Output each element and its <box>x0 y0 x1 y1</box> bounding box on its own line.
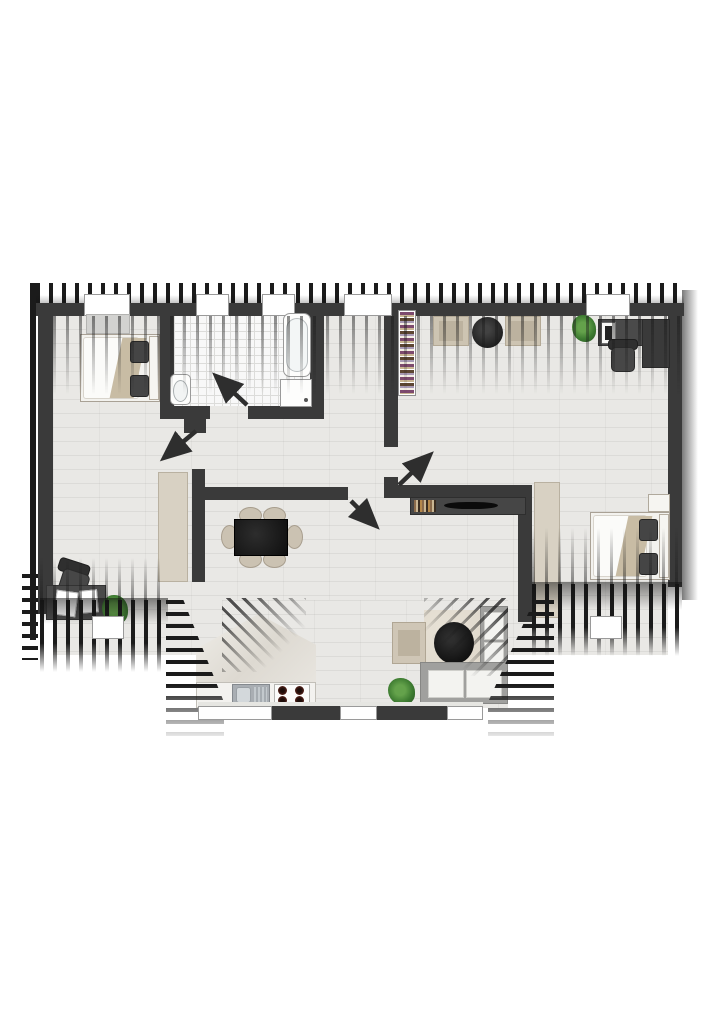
wall-living-left <box>192 469 205 582</box>
wall-lroom-door-jamb <box>384 477 398 497</box>
sideboard-books <box>414 500 436 512</box>
dormer-window-left <box>198 706 272 720</box>
roof-shade-right <box>682 290 698 600</box>
dormer-window-mid <box>340 706 377 720</box>
window-lroom-top <box>586 294 630 316</box>
wall-bedroom1-door-jamb <box>184 406 206 433</box>
dormer-wall-2 <box>377 706 447 720</box>
shower-drain <box>304 398 308 402</box>
plant-lounge <box>388 678 415 705</box>
floor-plan <box>0 0 724 1024</box>
roof-shade-bottom-right <box>532 582 682 610</box>
wall-living-top <box>192 487 348 500</box>
hob-burner-2 <box>295 686 304 695</box>
nightstand <box>648 494 670 512</box>
dormer-window-right <box>447 706 483 720</box>
sink-bowl <box>236 687 251 703</box>
window-hall-top <box>344 294 392 316</box>
wall-bedroom2-left <box>518 498 532 622</box>
window-bedroom2-bottom <box>590 616 622 639</box>
window-bedroom1-bottom <box>92 616 124 639</box>
dormer-wall-1 <box>272 706 340 720</box>
roof-slope-shadow-top <box>53 316 683 394</box>
hob-burner-1 <box>278 686 287 695</box>
dining-table <box>234 519 288 556</box>
roof-slope-shadow-bottom-left <box>40 558 168 602</box>
roof-hatch-left-corner <box>22 574 38 660</box>
dining-chair-6 <box>286 525 303 549</box>
dormer-slope-hatch-right <box>424 598 508 676</box>
window-bedroom1-top <box>84 294 130 316</box>
tv <box>444 502 498 509</box>
sink-drainboard <box>254 687 267 703</box>
window-bathroom-1 <box>196 294 229 316</box>
dormer-slope-hatch-left <box>222 598 306 672</box>
armchair-cushion <box>398 630 420 656</box>
roof-slope-shadow-bottom-right <box>532 528 682 586</box>
